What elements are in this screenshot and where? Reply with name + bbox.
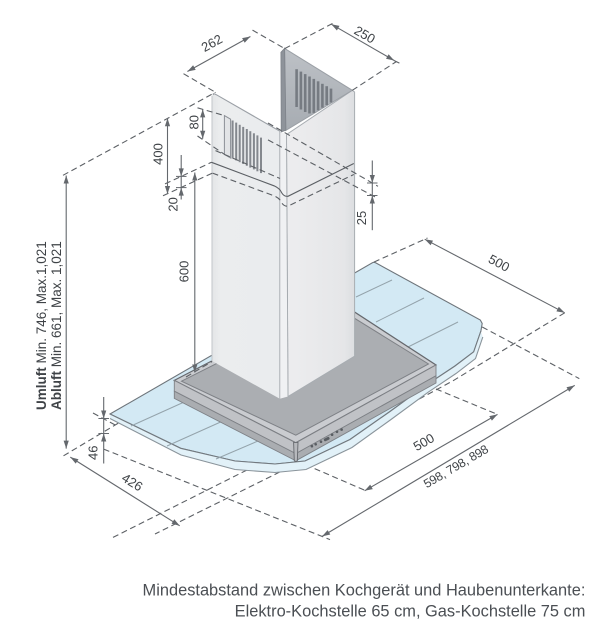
svg-text:80: 80 [186,115,201,129]
svg-text:400: 400 [150,143,165,165]
svg-text:25: 25 [354,211,369,225]
svg-text:20: 20 [165,197,180,211]
svg-text:600: 600 [177,261,192,283]
svg-text:46: 46 [85,445,100,459]
svg-text:Mindestabstand zwischen Kochge: Mindestabstand zwischen Kochgerät und Ha… [143,582,586,600]
svg-text:Umluft Min. 746, Max.1,021: Umluft Min. 746, Max.1,021 [34,241,49,410]
svg-text:Abluft Min. 661, Max. 1,021: Abluft Min. 661, Max. 1,021 [49,241,64,410]
svg-text:Elektro-Kochstelle 65 cm, Gas-: Elektro-Kochstelle 65 cm, Gas-Kochstelle… [235,603,586,621]
